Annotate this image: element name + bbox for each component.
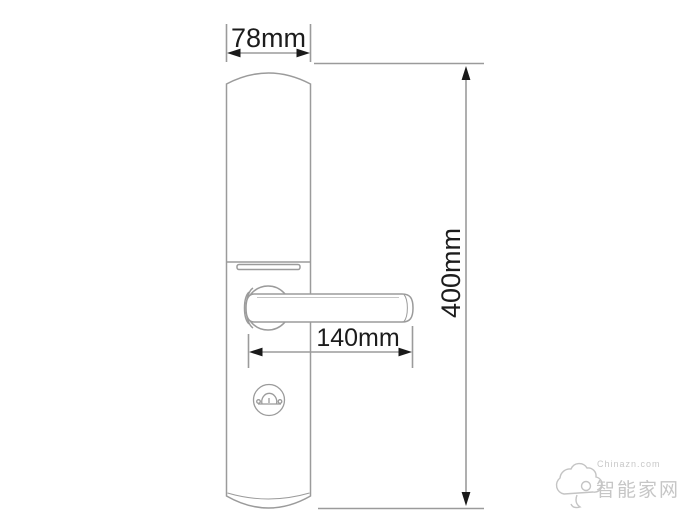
lock-plate [227,73,311,508]
cloud-tail [571,495,580,508]
dim-handle-label: 140mm [313,326,403,351]
diagram-canvas: 78mm 400mm 140mm Chinazn.com 智能家网 [0,0,687,521]
dim-width-label: 78mm [226,25,311,52]
handle-lever [246,294,413,322]
dim-height-arrow-bottom [462,492,471,506]
lock-drawing [0,0,687,521]
cloud-dot [582,482,591,491]
watermark-site-name: 智能家网 [596,475,687,502]
plate-groove [237,265,300,270]
dim-height-arrow-top [462,66,471,80]
watermark-url-text: Chinazn.com [597,459,687,469]
plate-outline [227,73,311,508]
dim-height-label: 400mm [437,223,465,323]
